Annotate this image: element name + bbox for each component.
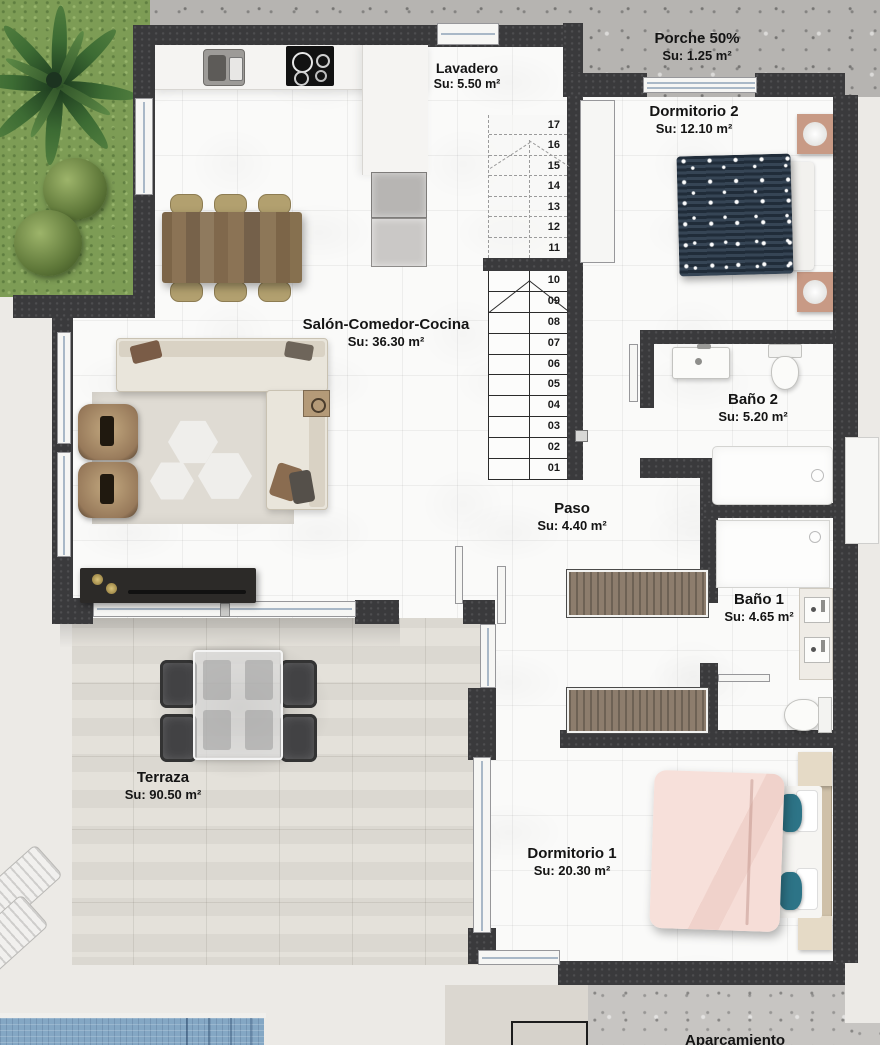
dining-table (162, 212, 302, 283)
dining-chair (170, 281, 203, 302)
room-area: Su: 4.65 m² (724, 609, 793, 625)
stair-step: 17 (489, 115, 567, 135)
room-area: Su: 4.40 m² (537, 518, 606, 534)
wall-dorm1-bottom (558, 961, 845, 985)
stair-step: 15 (489, 156, 567, 176)
room-name: Paso (537, 500, 606, 518)
soundbar-icon (128, 590, 246, 594)
door-handle-nub (575, 430, 588, 442)
open-door-leaf (455, 546, 463, 604)
bed-dormitorio1-duvet (649, 770, 784, 932)
room-label-salon: Salón-Comedor-Cocina Su: 36.30 m² (303, 316, 470, 350)
room-label-terraza: Terraza Su: 90.50 m² (125, 769, 202, 803)
room-area: Su: 5.20 m² (718, 409, 787, 425)
wall-bottom-door-block (463, 600, 495, 624)
pool (0, 1018, 264, 1045)
room-area: Su: 90.50 m² (125, 787, 202, 803)
stair-step: 01 (489, 459, 567, 480)
kitchen-window (135, 98, 153, 195)
bed-dormitorio2 (676, 154, 793, 277)
room-area: Su: 12.10 m² (649, 121, 738, 137)
armchair (78, 462, 138, 518)
toilet-icon (784, 699, 820, 731)
side-table (303, 390, 330, 417)
stair-step: 11 (489, 238, 567, 258)
room-label-bano2: Baño 2 Su: 5.20 m² (718, 391, 787, 425)
vanity-double-sink (799, 588, 833, 680)
outdoor-table (193, 650, 283, 760)
stair-step: 12 (489, 217, 567, 237)
wall-stairs-landing (483, 258, 575, 271)
sofa-top (116, 338, 328, 392)
garden-grass (0, 0, 150, 297)
tv-unit (80, 568, 256, 603)
stairs-lower-flight: 10 09 08 07 06 05 04 03 02 01 (488, 271, 567, 480)
room-name: Dormitorio 1 (527, 845, 616, 863)
room-name: Porche 50% (654, 30, 739, 48)
stair-step: 04 (489, 396, 567, 417)
toilet-tank (818, 697, 832, 733)
sun-lounger (0, 894, 49, 992)
room-label-porche: Porche 50% Su: 1.25 m² (654, 30, 739, 64)
room-label-bano1: Baño 1 Su: 4.65 m² (724, 591, 793, 625)
room-label-dormitorio2: Dormitorio 2 Su: 12.10 m² (649, 103, 738, 137)
stair-step: 06 (489, 355, 567, 376)
wall-bano2-left (640, 330, 654, 408)
oven-icon (371, 218, 427, 267)
room-area: Su: 1.25 m² (654, 48, 739, 64)
wall-bano2-top (640, 330, 835, 344)
room-name: Baño 2 (718, 391, 787, 409)
open-door-leaf (497, 566, 506, 624)
stair-step: 13 (489, 197, 567, 217)
washbasin-icon (672, 347, 730, 379)
dormitorio1-window-bottom (478, 950, 560, 965)
stair-step: 05 (489, 375, 567, 396)
room-name: Dormitorio 2 (649, 103, 738, 121)
stair-step: 08 (489, 313, 567, 334)
lavadero-door (437, 23, 499, 45)
stair-step: 07 (489, 334, 567, 355)
wall-garden-bottom (13, 295, 155, 318)
dining-chair (258, 281, 291, 302)
stair-step: 16 (489, 135, 567, 155)
exterior-lightwell (845, 437, 879, 544)
room-name: Baño 1 (724, 591, 793, 609)
terrace-sliding-door (93, 601, 356, 617)
bano1-door-leaf (718, 674, 770, 682)
wall-dorm2-top-left (563, 73, 647, 97)
room-label-aparcamiento: Aparcamiento (685, 1032, 785, 1045)
bush-icon (14, 210, 82, 276)
room-name: Lavadero (434, 60, 501, 77)
room-name: Salón-Comedor-Cocina (303, 316, 470, 334)
room-name: Aparcamiento (685, 1032, 785, 1045)
fridge-icon (371, 172, 427, 218)
nightstand (797, 114, 833, 154)
lamp-icon (803, 122, 827, 146)
dormitorio1-window-left (473, 757, 491, 933)
bedside-bench (798, 916, 832, 950)
dormitorio2-window (643, 77, 757, 93)
wall-bottom-mid-block (355, 600, 399, 624)
room-area: Su: 5.50 m² (434, 77, 501, 92)
salon-window-2 (57, 452, 71, 557)
stair-step: 03 (489, 417, 567, 438)
stair-step: 14 (489, 176, 567, 196)
wall-dorm1-left-upper (468, 688, 496, 760)
wardrobe (567, 570, 708, 617)
outdoor-chair (280, 714, 317, 762)
kitchen-counter-right (362, 45, 428, 175)
parking-outline (511, 1021, 588, 1045)
outdoor-chair (280, 660, 317, 708)
room-area: Su: 36.30 m² (303, 334, 470, 350)
kitchen-sink-icon (203, 49, 245, 86)
lamp-icon (803, 280, 827, 304)
stair-step: 02 (489, 438, 567, 459)
room-area: Su: 20.30 m² (527, 863, 616, 879)
outdoor-chair (160, 660, 197, 708)
nightstand (797, 272, 833, 312)
floor-plan: 17 16 15 14 13 12 11 10 09 08 07 06 05 0… (0, 0, 880, 1045)
armchair (78, 404, 138, 460)
wall-bath-divider (703, 503, 833, 518)
teal-pillow (778, 872, 802, 910)
salon-window-1 (57, 332, 71, 444)
toilet-icon (771, 356, 799, 390)
bedside-bench (798, 752, 832, 786)
bathtub-icon (712, 446, 833, 505)
cooktop-icon (286, 46, 334, 86)
aparcamiento-concrete-corner (845, 1023, 880, 1045)
wall-top (133, 25, 583, 47)
room-name: Terraza (125, 769, 202, 787)
dormitorio2-door-panel (580, 100, 615, 263)
outdoor-chair (160, 714, 197, 762)
wardrobe (567, 688, 708, 733)
bano2-door-leaf (629, 344, 638, 402)
dining-chair (214, 281, 247, 302)
room-label-paso: Paso Su: 4.40 m² (537, 500, 606, 534)
stairs-upper-flight: 17 16 15 14 13 12 11 (488, 115, 567, 258)
room-label-lavadero: Lavadero Su: 5.50 m² (434, 60, 501, 92)
shower-icon (716, 520, 830, 588)
room-label-dormitorio1: Dormitorio 1 Su: 20.30 m² (527, 845, 616, 879)
corridor-window (480, 624, 496, 688)
wall-dorm2-top-right (755, 73, 845, 97)
